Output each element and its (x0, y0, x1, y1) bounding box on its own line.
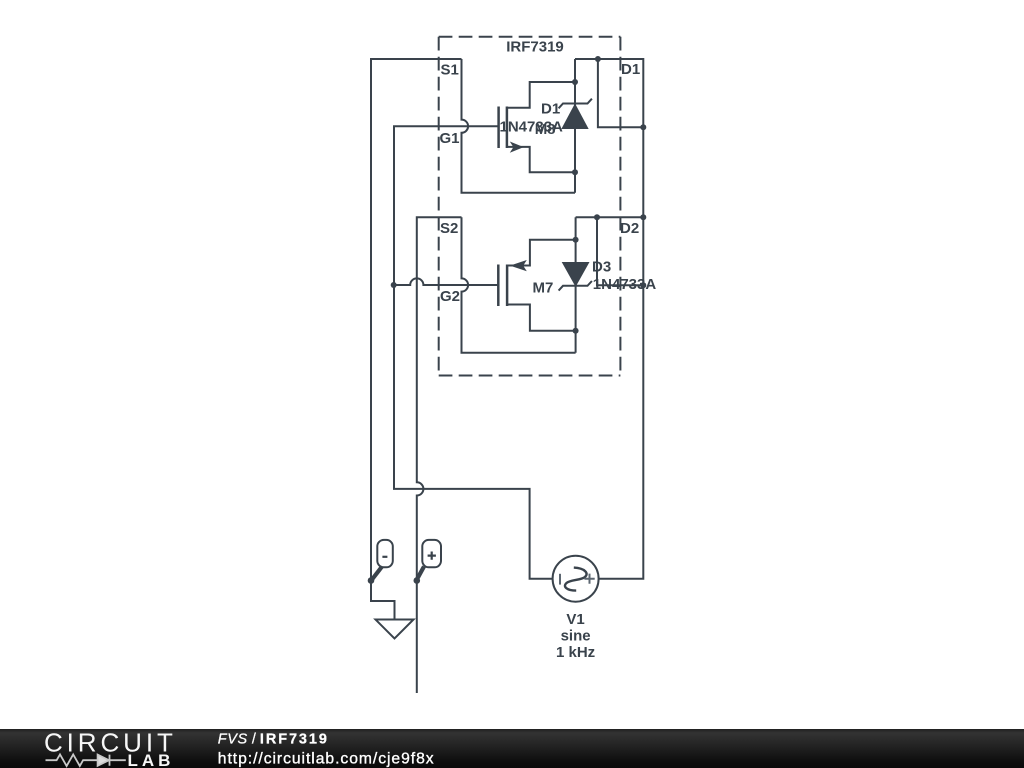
svg-text:sine: sine (561, 628, 591, 645)
svg-text:1 kHz: 1 kHz (556, 644, 595, 661)
svg-text:V1: V1 (566, 611, 584, 628)
svg-text:G1: G1 (440, 130, 460, 147)
svg-text:D1: D1 (621, 61, 640, 78)
svg-text:S2: S2 (440, 220, 458, 237)
svg-text:M8: M8 (535, 121, 556, 138)
svg-text:1N4733A: 1N4733A (593, 276, 657, 293)
svg-text:LAB: LAB (128, 751, 175, 768)
svg-text:D1: D1 (541, 101, 560, 118)
svg-text:D2: D2 (620, 220, 639, 237)
svg-text:IRF7319: IRF7319 (506, 39, 564, 56)
svg-text:http://circuitlab.com/cje9f8x: http://circuitlab.com/cje9f8x (218, 751, 435, 768)
svg-text:D3: D3 (592, 259, 611, 276)
svg-text:S1: S1 (441, 62, 459, 79)
svg-text:M7: M7 (533, 280, 554, 297)
svg-text:G2: G2 (440, 288, 460, 305)
svg-text:FVS / IRF7319: FVS / IRF7319 (218, 732, 329, 748)
